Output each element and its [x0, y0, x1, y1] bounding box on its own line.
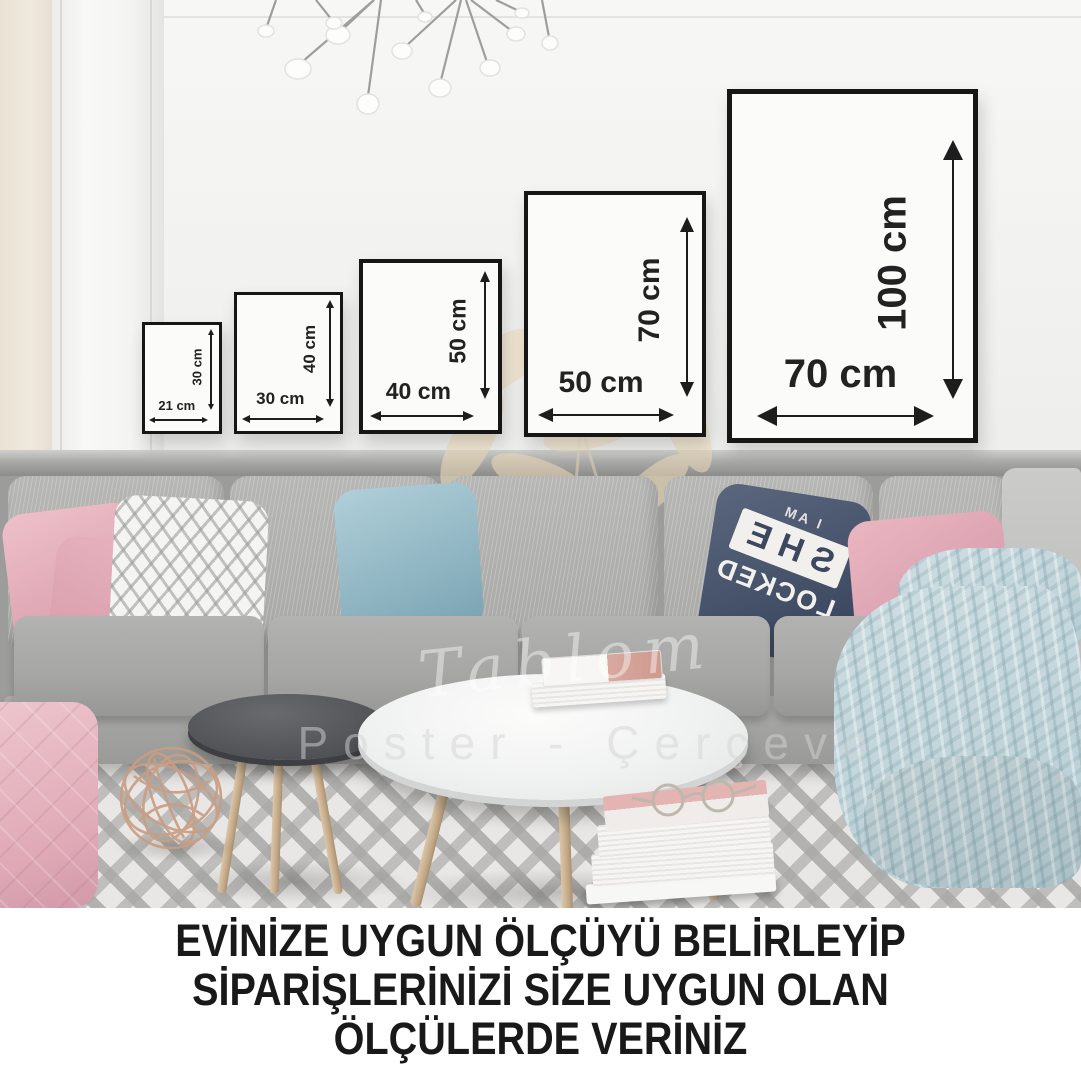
height-arrow-icon [329, 302, 331, 405]
pink-pouf [0, 702, 98, 908]
pilaster-groove [60, 0, 62, 472]
teal-pillow [333, 481, 485, 637]
width-label: 30 cm [256, 389, 304, 409]
width-arrow-icon [759, 415, 933, 417]
height-label: 70 cm [633, 257, 667, 342]
frame-30x40: 40 cm 30 cm [234, 292, 343, 434]
height-label: 100 cm [871, 195, 916, 331]
frame-50x70: 70 cm 50 cm [524, 191, 706, 437]
width-label: 70 cm [784, 352, 897, 397]
height-label: 40 cm [300, 325, 320, 373]
width-arrow-icon [151, 419, 206, 421]
height-arrow-icon [952, 142, 954, 397]
frame-21x30: 30 cm 21 cm [142, 322, 222, 434]
knit-blanket-fold [864, 756, 1081, 888]
caption-line-1: EVİNİZE UYGUN ÖLÇÜYÜ BELİRLEYİP [65, 916, 1016, 965]
height-arrow-icon [686, 219, 688, 395]
caption-line-3: ÖLÇÜLERDE VERİNİZ [65, 1014, 1016, 1063]
width-label: 50 cm [559, 366, 644, 400]
eyeglasses-icon [630, 776, 760, 820]
height-arrow-icon [484, 273, 486, 397]
product-size-guide-image: 30 cm 21 cm 40 cm 30 cm 50 cm 40 cm 70 c… [0, 0, 1081, 1081]
frame-70x100: 100 cm 70 cm [727, 89, 978, 443]
table-shadow [180, 860, 410, 904]
pillow-mirrored-text: I AM SHE LOCKED [696, 482, 874, 631]
caption-line-2: SİPARİŞLERİNİZİ SİZE UYGUN OLAN [65, 965, 1016, 1014]
height-label: 50 cm [444, 299, 471, 364]
frame-40x50: 50 cm 40 cm [359, 259, 502, 434]
left-cream-wall [0, 0, 52, 470]
height-arrow-icon [210, 331, 212, 407]
width-label: 21 cm [158, 398, 195, 413]
width-arrow-icon [540, 414, 672, 416]
wire-sphere [114, 746, 228, 854]
caption-band: EVİNİZE UYGUN ÖLÇÜYÜ BELİRLEYİP SİPARİŞL… [0, 908, 1081, 1081]
chandelier-icon [256, 0, 568, 126]
width-arrow-icon [372, 415, 472, 417]
width-arrow-icon [244, 418, 322, 420]
caption-text: EVİNİZE UYGUN ÖLÇÜYÜ BELİRLEYİP SİPARİŞL… [65, 916, 1016, 1063]
width-label: 40 cm [386, 378, 451, 405]
height-label: 30 cm [189, 349, 204, 386]
